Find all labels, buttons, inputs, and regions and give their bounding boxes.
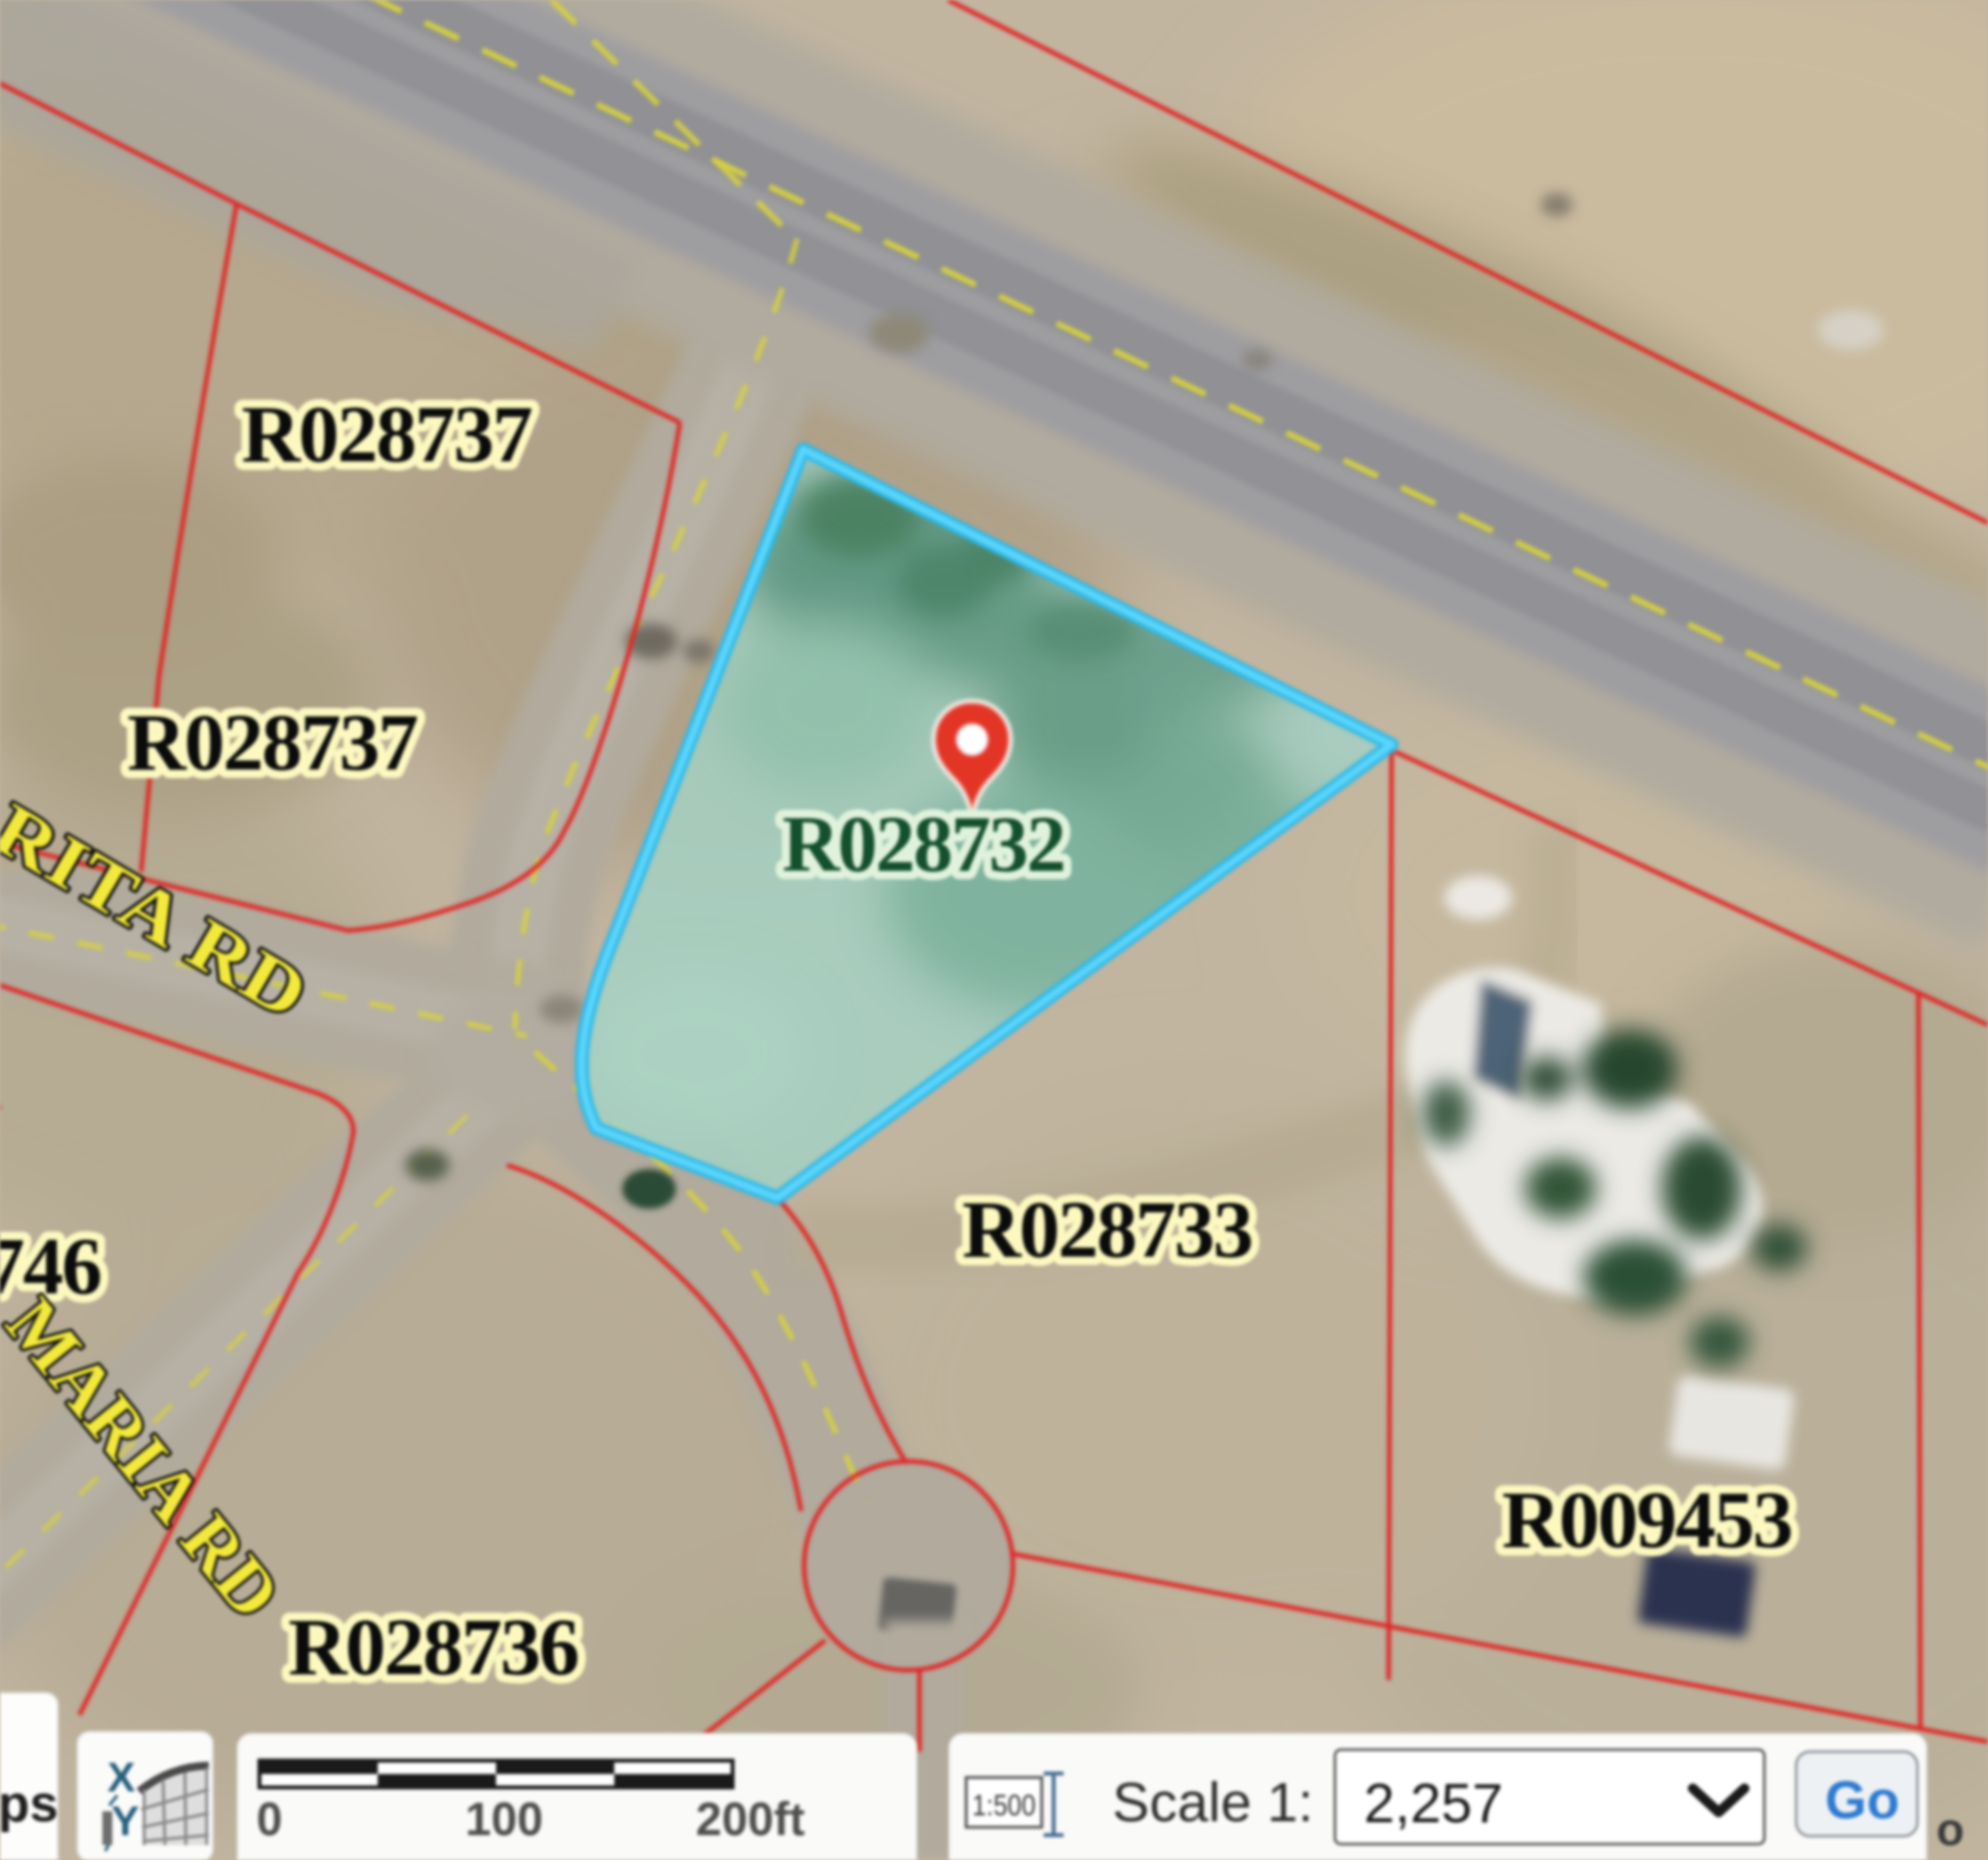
svg-text:100: 100 (465, 1792, 543, 1845)
svg-text:Scale 1:: Scale 1: (1112, 1771, 1313, 1833)
svg-text:0: 0 (256, 1792, 282, 1845)
svg-text:Y: Y (111, 1797, 139, 1844)
svg-text:X: X (107, 1754, 135, 1800)
svg-text:R009453: R009453 (1502, 1474, 1791, 1565)
svg-text:200ft: 200ft (696, 1792, 805, 1845)
svg-text:R028732: R028732 (782, 801, 1065, 889)
svg-text:R028737: R028737 (127, 697, 416, 787)
svg-text:R028733: R028733 (962, 1184, 1251, 1274)
svg-text:R028736: R028736 (288, 1602, 578, 1692)
svg-text:1:500: 1:500 (972, 1789, 1036, 1822)
svg-text:ps: ps (0, 1775, 59, 1833)
svg-text:o: o (1936, 1803, 1964, 1855)
svg-text:R028737: R028737 (242, 389, 531, 479)
svg-text:2,257: 2,257 (1364, 1772, 1503, 1834)
svg-text:Go: Go (1825, 1771, 1900, 1830)
